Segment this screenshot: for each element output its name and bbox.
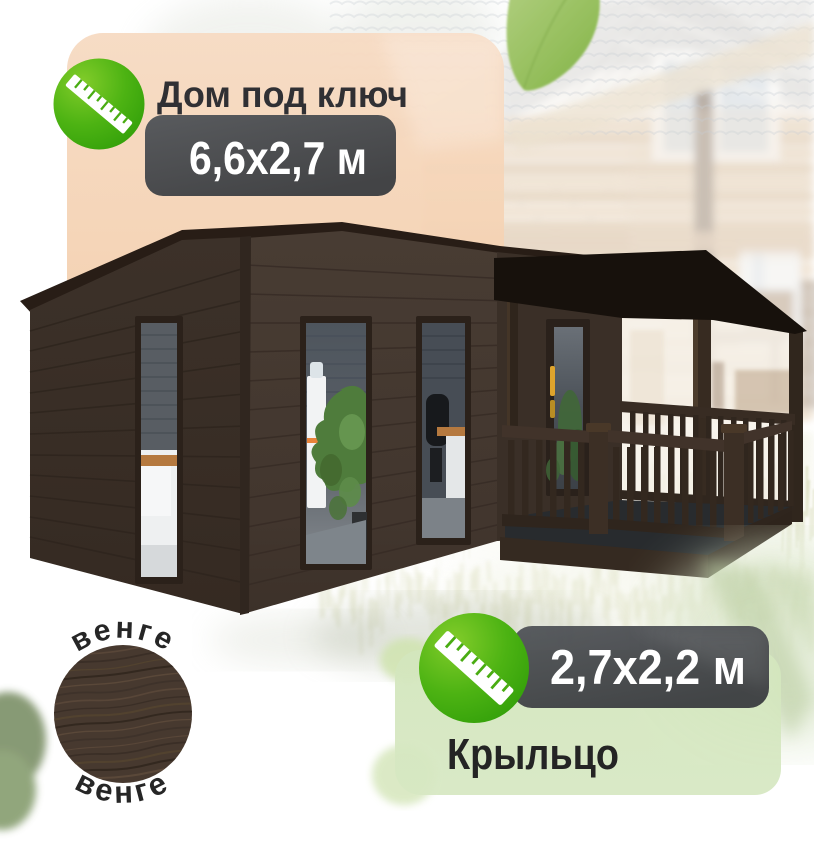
- svg-text:Дом под ключ: Дом под ключ: [157, 74, 408, 115]
- svg-text:Крыльцо: Крыльцо: [447, 730, 619, 779]
- svg-text:2,7x2,2 м: 2,7x2,2 м: [550, 641, 746, 695]
- svg-text:6,6x2,7 м: 6,6x2,7 м: [189, 132, 367, 184]
